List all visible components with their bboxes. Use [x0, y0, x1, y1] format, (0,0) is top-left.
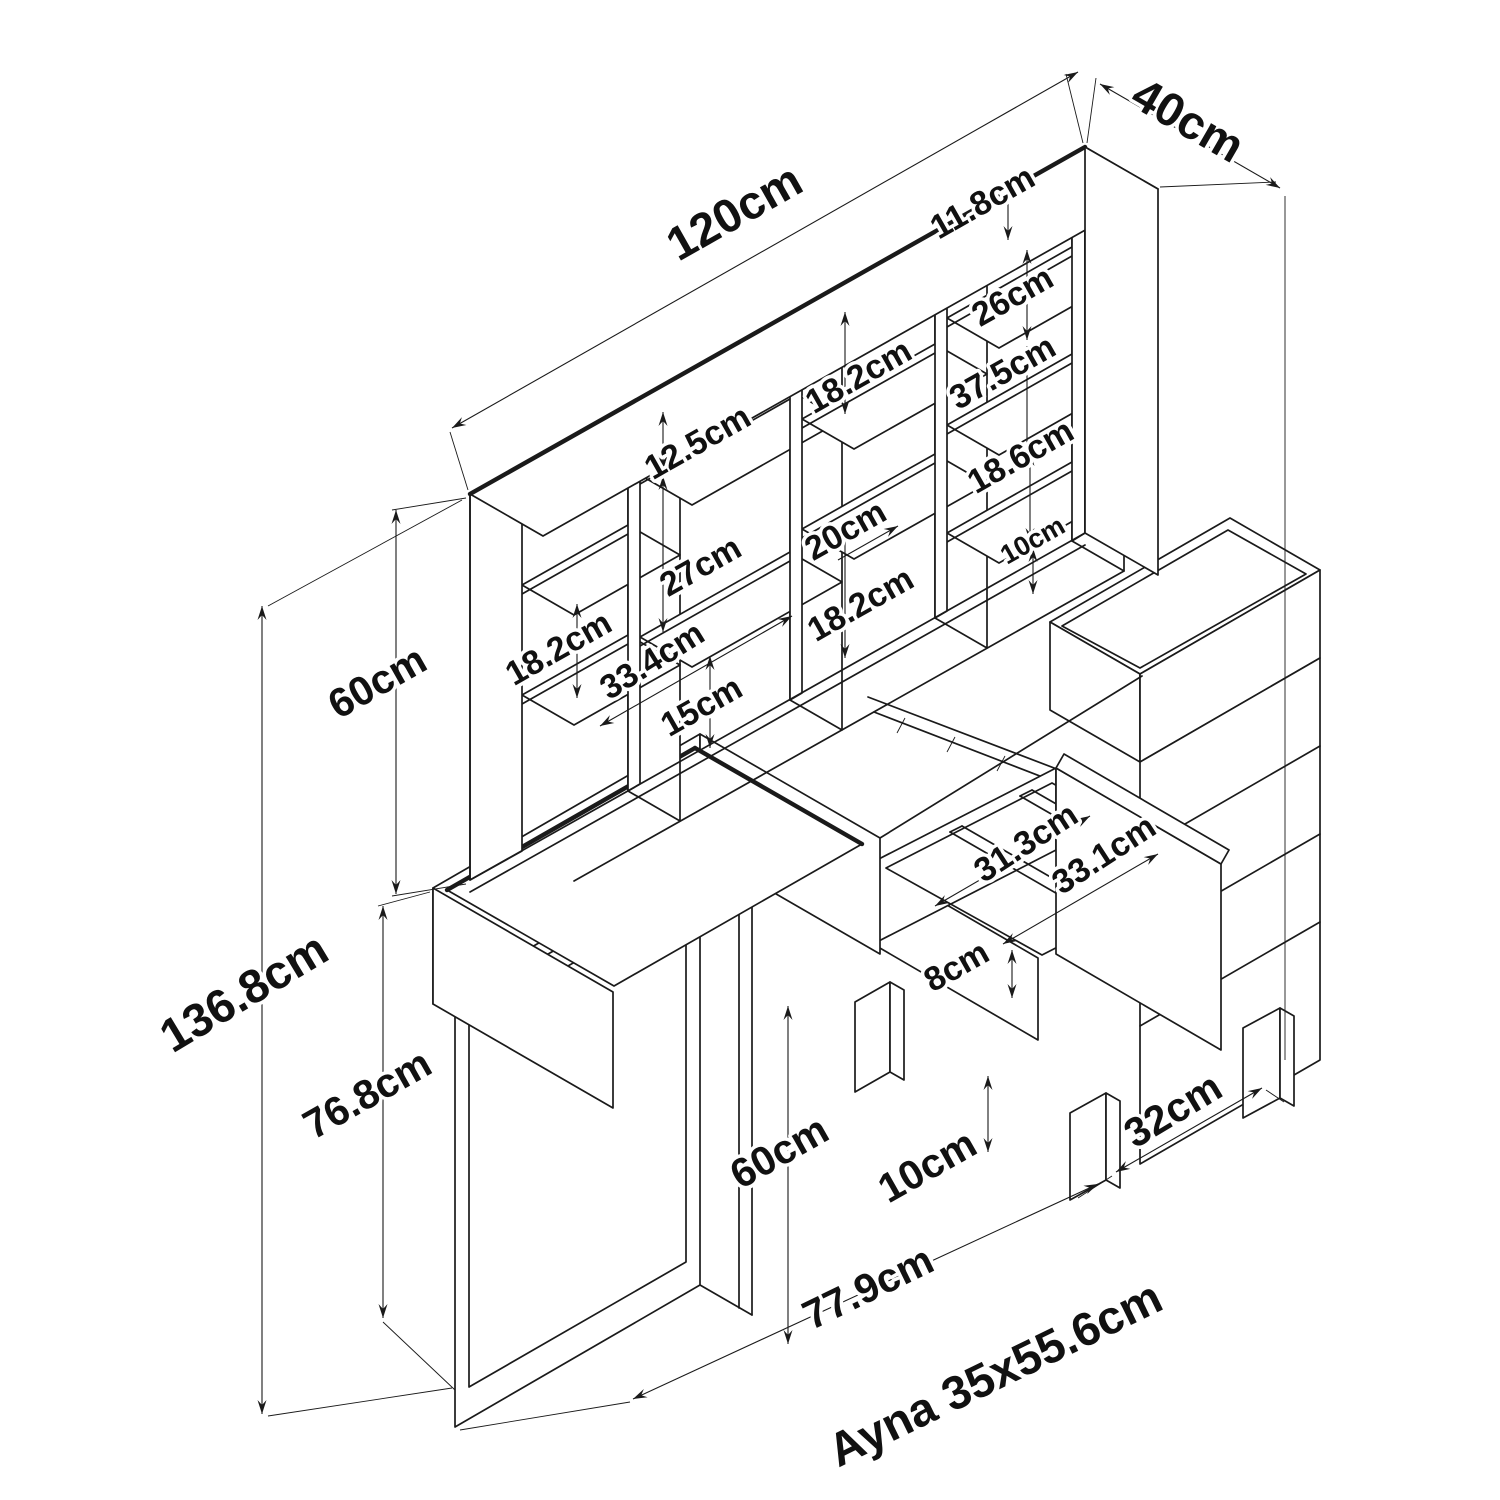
dim-leg-height: 10cm [870, 1120, 984, 1212]
dim-width: 120cm [657, 153, 810, 271]
dim-depth: 40cm [1123, 67, 1254, 173]
furniture-dimension-diagram: 120cm 40cm 11.8cm 26cm 37.5cm 18.6cm 10c… [0, 0, 1500, 1500]
dim-hutch-height: 60cm [320, 636, 434, 728]
hutch-right-panel [1085, 147, 1158, 575]
dim-base-height: 76.8cm [295, 1040, 439, 1149]
technical-drawing-canvas: 120cm 40cm 11.8cm 26cm 37.5cm 18.6cm 10c… [0, 0, 1500, 1500]
dim-total-height: 136.8cm [150, 921, 336, 1062]
dim-table-width: 77.9cm [795, 1236, 940, 1338]
